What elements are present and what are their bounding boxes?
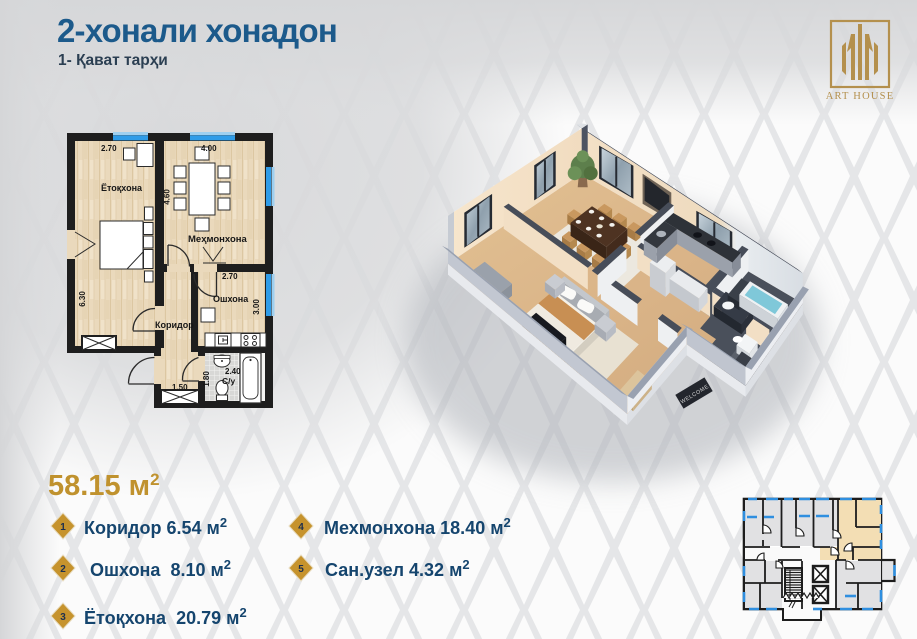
svg-text:4: 4 bbox=[298, 522, 304, 533]
svg-text:2: 2 bbox=[60, 564, 66, 575]
svg-text:5: 5 bbox=[298, 564, 304, 575]
svg-text:3: 3 bbox=[60, 612, 66, 623]
svg-text:1: 1 bbox=[60, 522, 66, 533]
